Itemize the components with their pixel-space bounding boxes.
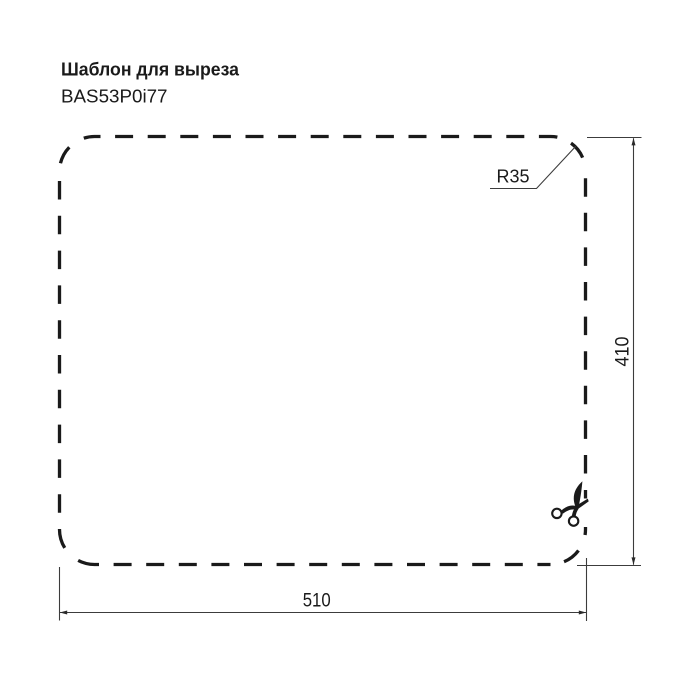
- svg-text:BAS53P0i77: BAS53P0i77: [61, 86, 168, 107]
- svg-text:Шаблон для выреза: Шаблон для выреза: [61, 59, 240, 80]
- svg-text:410: 410: [612, 337, 633, 367]
- svg-text:510: 510: [303, 591, 331, 612]
- svg-text:R35: R35: [497, 165, 530, 186]
